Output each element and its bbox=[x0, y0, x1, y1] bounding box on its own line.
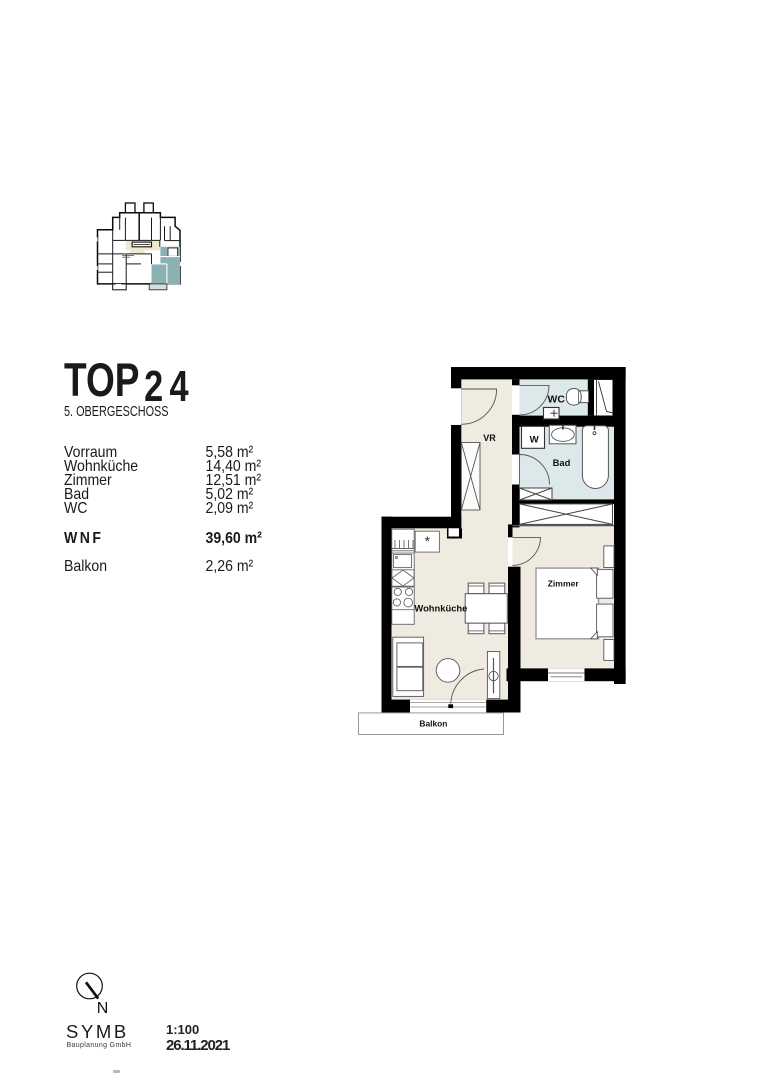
svg-text:Balkon: Balkon bbox=[419, 719, 447, 729]
svg-text:Wohnküche: Wohnküche bbox=[414, 603, 467, 614]
svg-text:*: * bbox=[425, 533, 431, 549]
svg-text:Zimmer: Zimmer bbox=[548, 578, 580, 588]
svg-text:W: W bbox=[530, 435, 540, 446]
svg-text:WC: WC bbox=[548, 394, 566, 405]
svg-text:Bad: Bad bbox=[553, 457, 571, 468]
svg-text:VR: VR bbox=[483, 433, 496, 443]
